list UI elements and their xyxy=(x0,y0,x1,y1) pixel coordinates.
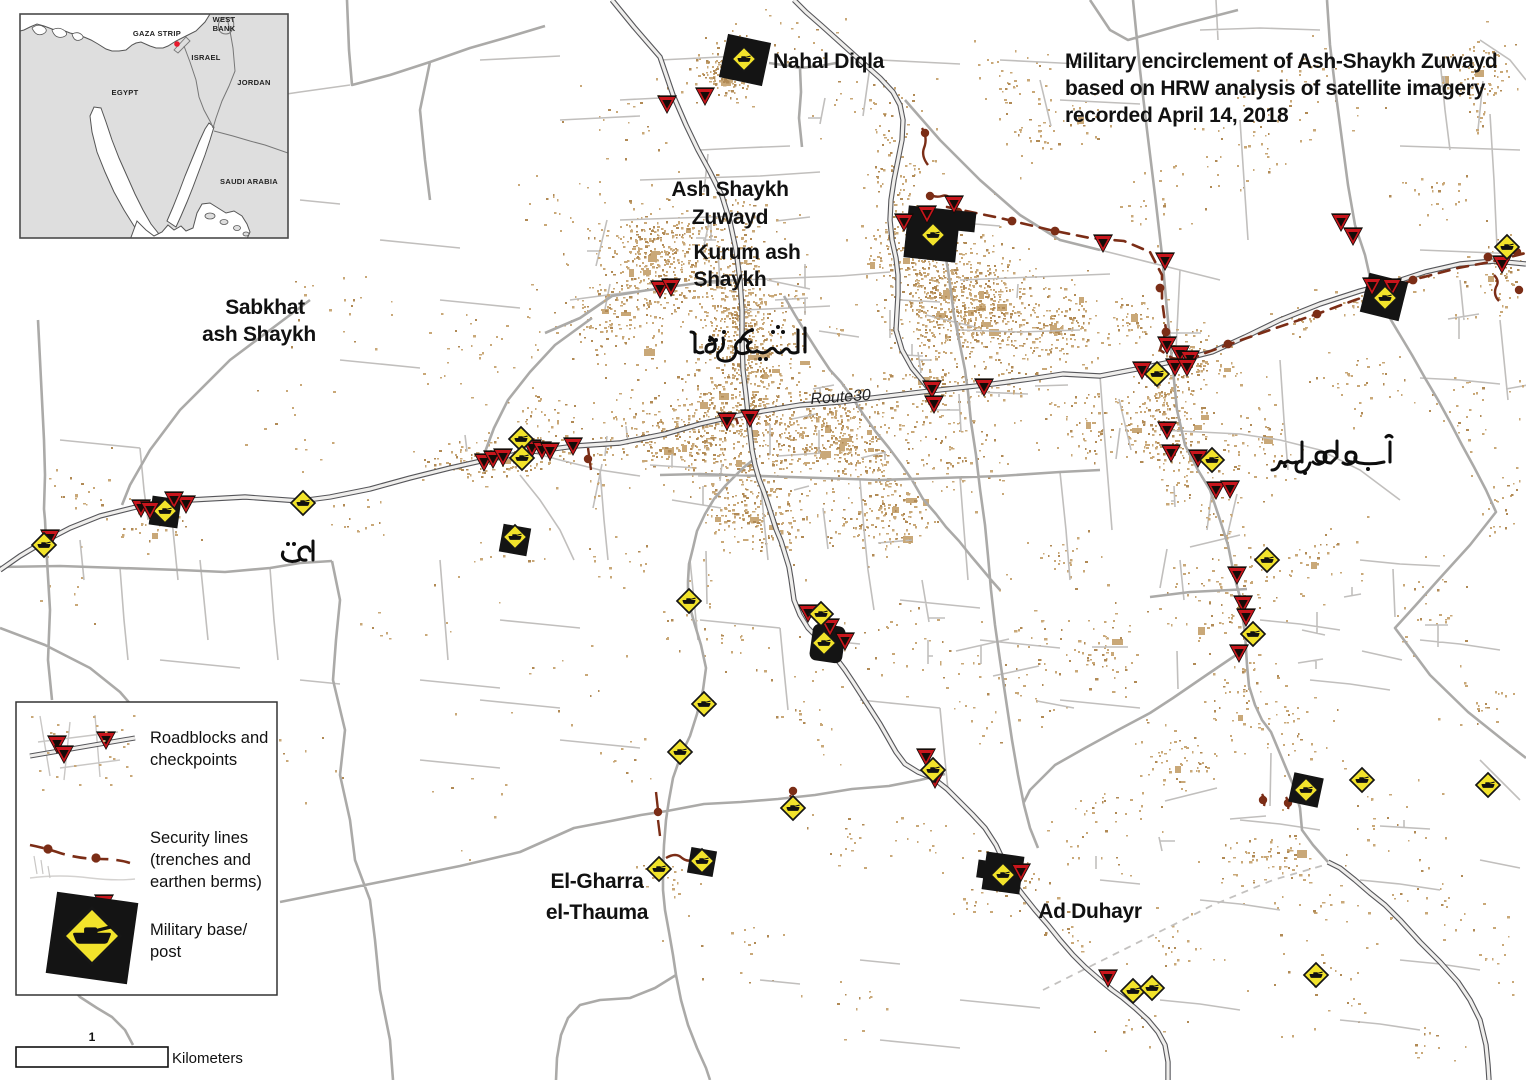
svg-text:1: 1 xyxy=(89,1030,96,1044)
svg-text:Security lines: Security lines xyxy=(150,829,248,847)
svg-text:Roadblocks and: Roadblocks and xyxy=(150,729,268,747)
svg-text:GAZA STRIP: GAZA STRIP xyxy=(133,29,181,38)
svg-text:SAUDI ARABIA: SAUDI ARABIA xyxy=(220,177,278,186)
svg-text:Nahal Diqla: Nahal Diqla xyxy=(773,50,885,73)
svg-text:BANK: BANK xyxy=(213,24,236,33)
svg-text:WEST: WEST xyxy=(213,15,236,24)
svg-text:Kilometers: Kilometers xyxy=(172,1050,243,1067)
svg-text:Military encirclement of Ash-S: Military encirclement of Ash-Shaykh Zuwa… xyxy=(1065,50,1497,73)
svg-text:earthen berms): earthen berms) xyxy=(150,873,262,891)
svg-text:Zuwayd: Zuwayd xyxy=(692,206,768,229)
svg-text:EGYPT: EGYPT xyxy=(112,88,139,97)
svg-text:Ad Duhayr: Ad Duhayr xyxy=(1038,900,1142,923)
svg-text:JORDAN: JORDAN xyxy=(237,78,270,87)
svg-text:recorded April 14, 2018: recorded April 14, 2018 xyxy=(1065,104,1289,127)
svg-text:Kurum ash: Kurum ash xyxy=(694,241,801,264)
svg-text:checkpoints: checkpoints xyxy=(150,751,237,769)
svg-text:Sabkhat: Sabkhat xyxy=(225,296,305,319)
svg-text:ISRAEL: ISRAEL xyxy=(191,53,220,62)
svg-text:Ash Shaykh: Ash Shaykh xyxy=(671,178,788,201)
svg-text:ash Shaykh: ash Shaykh xyxy=(202,323,316,346)
svg-text:Military base/: Military base/ xyxy=(150,921,248,939)
svg-text:Shaykh: Shaykh xyxy=(694,268,767,291)
svg-text:based on HRW analysis of satel: based on HRW analysis of satellite image… xyxy=(1065,77,1486,100)
svg-text:el-Thauma: el-Thauma xyxy=(546,901,649,924)
svg-text:El-Gharra: El-Gharra xyxy=(551,870,645,893)
svg-text:(trenches and: (trenches and xyxy=(150,851,251,869)
svg-text:post: post xyxy=(150,943,182,961)
